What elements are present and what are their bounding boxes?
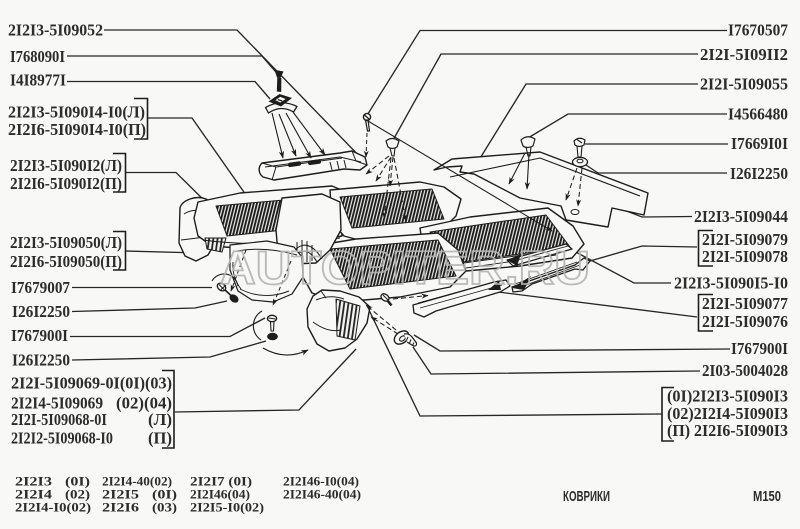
svg-text:2I2I3-5I09052: 2I2I3-5I09052 [8,21,103,40]
svg-text:I7670507: I7670507 [728,21,788,40]
svg-text:(02): (02) [65,488,90,502]
svg-text:(П) 2I2I6-5I090I3: (П) 2I2I6-5I090I3 [667,421,788,440]
svg-text:I7679007: I7679007 [11,278,70,297]
svg-text:2I2I46-40(04): 2I2I46-40(04) [283,488,361,502]
svg-text:(0I): (0I) [152,488,177,502]
svg-text:2I2I5-I0(02): 2I2I5-I0(02) [190,501,264,515]
svg-text:(П): (П) [148,429,172,448]
svg-text:2I2I-5I09078: 2I2I-5I09078 [702,247,788,266]
svg-text:2I2I5: 2I2I5 [102,488,139,502]
svg-text:2I2I46-I0(04): 2I2I46-I0(04) [283,475,359,489]
svg-text:2I2I46(04): 2I2I46(04) [190,488,250,502]
svg-text:2I2I-5I09069-0I(0I)(03): 2I2I-5I09069-0I(0I)(03) [11,374,172,393]
svg-text:М150: М150 [753,488,781,505]
svg-text:I26I2250: I26I2250 [12,302,70,321]
svg-text:I767900I: I767900I [731,339,788,358]
svg-text:(Л): (Л) [148,410,172,429]
svg-text:I767900I: I767900I [11,326,68,345]
svg-text:2I2I4-I0(02): 2I2I4-I0(02) [15,501,91,515]
svg-text:2I2I6: 2I2I6 [102,501,139,515]
svg-text:2I2I7 (0I): 2I2I7 (0I) [190,475,252,489]
svg-text:I7669I0I: I7669I0I [731,134,788,153]
svg-text:2I2I3-5I090I4-I0(Л): 2I2I3-5I090I4-I0(Л) [8,103,145,122]
svg-text:I26I2250: I26I2250 [12,351,70,370]
svg-text:КОВРИКИ: КОВРИКИ [563,488,610,505]
svg-text:I4566480: I4566480 [728,105,788,124]
svg-text:2I2I3-5I09050(Л): 2I2I3-5I09050(Л) [10,233,122,252]
svg-text:2I2I-5I09055: 2I2I-5I09055 [700,75,788,94]
svg-text:2I2I-5I09076: 2I2I-5I09076 [702,312,788,331]
svg-text:(03): (03) [152,501,177,515]
svg-text:2I2I4: 2I2I4 [15,488,53,502]
svg-text:I768090I: I768090I [10,47,65,66]
svg-text:2I2I3-5I09044: 2I2I3-5I09044 [694,207,788,226]
svg-text:2I03-5004028: 2I03-5004028 [702,361,788,380]
svg-text:2I2I4-40(02): 2I2I4-40(02) [102,475,172,489]
svg-text:2I2I3: 2I2I3 [15,475,52,489]
svg-text:(0I): (0I) [65,475,90,489]
svg-text:I4I8977I: I4I8977I [10,71,66,90]
svg-text:(0I)2I2I3-5I090I3: (0I)2I2I3-5I090I3 [667,387,788,406]
svg-text:2I2I-5I09077: 2I2I-5I09077 [702,294,788,313]
svg-text:2I2I6-5I090I2(П): 2I2I6-5I090I2(П) [10,174,122,193]
svg-text:2I2I6-5I090I4-I0(П): 2I2I6-5I090I4-I0(П) [8,120,146,139]
svg-text:2I2I-5I09II2: 2I2I-5I09II2 [700,45,788,64]
svg-text:AUTOPITER.RU: AUTOPITER.RU [220,241,590,294]
svg-text:2I2I2-5I09068-I0: 2I2I2-5I09068-I0 [11,429,113,448]
svg-text:2I2I-5I09068-0I: 2I2I-5I09068-0I [11,410,107,429]
svg-text:I26I2250: I26I2250 [730,164,788,183]
svg-text:2I2I3-5I090I5-I0: 2I2I3-5I090I5-I0 [674,274,788,293]
svg-text:2I2I3-5I090I2(Л): 2I2I3-5I090I2(Л) [10,156,122,175]
svg-text:2I2I6-5I09050(П): 2I2I6-5I09050(П) [10,252,122,271]
